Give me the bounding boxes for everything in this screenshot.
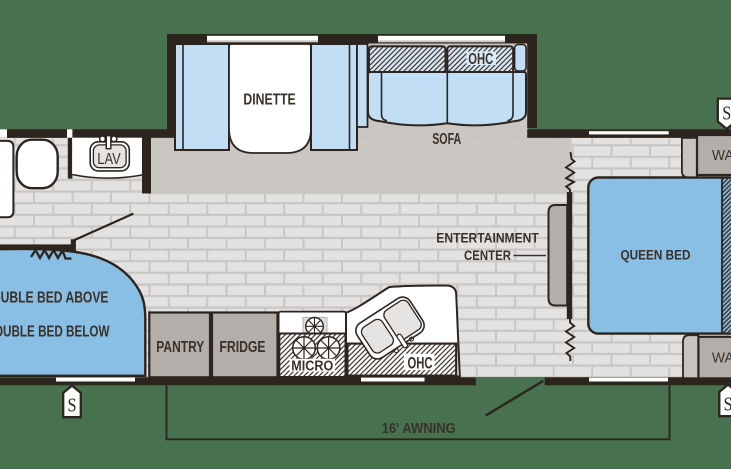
svg-text:DINETTE: DINETTE (243, 92, 295, 109)
svg-text:S: S (68, 395, 77, 417)
svg-text:WARD: WARD (712, 349, 731, 366)
svg-text:WARD: WARD (712, 147, 731, 164)
svg-text:PANTRY: PANTRY (156, 339, 204, 356)
svg-text:OHC: OHC (468, 51, 493, 68)
svg-text:S: S (724, 394, 731, 416)
svg-text:ENTERTAINMENT: ENTERTAINMENT (436, 230, 539, 246)
svg-text:16' AWNING: 16' AWNING (382, 421, 456, 437)
svg-text:S: S (722, 103, 731, 125)
svg-text:MICRO: MICRO (291, 359, 333, 375)
svg-text:OHC: OHC (408, 354, 433, 372)
svg-text:FRIDGE: FRIDGE (219, 339, 265, 356)
svg-text:DOUBLE BED BELOW: DOUBLE BED BELOW (0, 323, 110, 340)
svg-text:SOFA: SOFA (432, 131, 461, 148)
svg-text:QUEEN BED: QUEEN BED (621, 248, 691, 263)
svg-text:LAV: LAV (97, 151, 121, 168)
svg-text:CENTER: CENTER (464, 247, 511, 263)
svg-text:DOUBLE BED ABOVE: DOUBLE BED ABOVE (0, 289, 109, 306)
